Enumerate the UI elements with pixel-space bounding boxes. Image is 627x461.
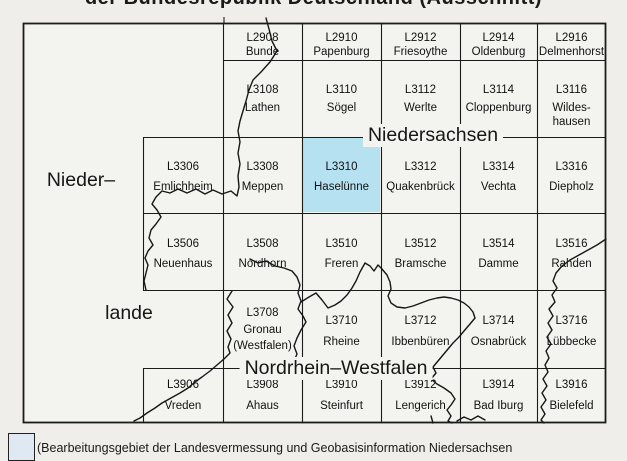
map-cell-L3316[interactable]: L3316Diepholz <box>538 138 605 212</box>
map-cell-L3506[interactable]: L3506Neuenhaus <box>144 214 222 289</box>
sheet-number: L3906 <box>142 377 224 393</box>
sheet-number: L3712 <box>380 313 461 329</box>
sheet-number: L3508 <box>222 236 303 252</box>
sheet-name: Sögel <box>301 100 382 116</box>
sheet-name: Quakenbrück <box>380 179 461 195</box>
region-label-niederlande-line2: lande <box>105 302 153 325</box>
sheet-name: Oldenburg <box>459 44 538 60</box>
sheet-name: Steinfurt <box>301 398 382 414</box>
map-cell-L3108[interactable]: L3108Lathen <box>224 61 301 136</box>
sheet-name: hausen <box>536 114 607 130</box>
sheet-name: Nordhorn <box>222 256 303 272</box>
map-cell-L3116[interactable]: L3116Wildes-hausen <box>538 61 605 136</box>
map-cell-L2910[interactable]: L2910Papenburg <box>303 24 380 59</box>
map-cell-L3510[interactable]: L3510Freren <box>303 214 380 289</box>
sheet-number: L3714 <box>459 313 538 329</box>
sheet-name: Papenburg <box>301 44 382 60</box>
map-cell-L3508[interactable]: L3508Nordhorn <box>224 214 301 289</box>
sheet-name: Friesoythe <box>380 44 461 60</box>
sheet-number: L3914 <box>459 377 538 393</box>
sheet-number: L3312 <box>380 159 461 175</box>
map-cell-L3314[interactable]: L3314Vechta <box>461 138 536 212</box>
sheet-name: Damme <box>459 256 538 272</box>
sheet-name: Cloppenburg <box>459 100 538 116</box>
map-cell-L3710[interactable]: L3710Rheine <box>303 291 380 367</box>
sheet-number: L3314 <box>459 159 538 175</box>
sheet-number: L3308 <box>222 159 303 175</box>
sheet-name: Neuenhaus <box>142 256 224 272</box>
sheet-name: Bad Iburg <box>459 398 538 414</box>
sheet-name: Lathen <box>222 100 303 116</box>
sheet-name: Ibbenbüren <box>380 334 461 350</box>
sheet-name: Osnabrück <box>459 334 538 350</box>
sheet-number: L3710 <box>301 313 382 329</box>
sheet-name: Freren <box>301 256 382 272</box>
sheet-number: L3512 <box>380 236 461 252</box>
sheet-number: L3316 <box>536 159 607 175</box>
sheet-number: L3310 <box>301 159 382 175</box>
sheet-number: L3716 <box>536 313 607 329</box>
sheet-name: Emlichheim <box>142 179 224 195</box>
sheet-name: Haselünne <box>301 179 382 195</box>
sheet-name: Lübbecke <box>536 334 607 350</box>
map-cell-L2916[interactable]: L2916Delmenhorst <box>538 24 605 59</box>
map-cell-L3714[interactable]: L3714Osnabrück <box>461 291 536 367</box>
sheet-number: L3114 <box>459 82 538 98</box>
map-cell-L3716[interactable]: L3716Lübbecke <box>538 291 605 367</box>
map-cell-L3514[interactable]: L3514Damme <box>461 214 536 289</box>
sheet-name: Meppen <box>222 179 303 195</box>
sheet-name: Werlte <box>380 100 461 116</box>
sheet-number: L3708 <box>222 305 303 321</box>
sheet-number: L3110 <box>301 82 382 98</box>
legend-highlight-swatch <box>8 433 35 461</box>
map-cell-L3312[interactable]: L3312Quakenbrück <box>382 138 459 212</box>
map-cell-L2912[interactable]: L2912Friesoythe <box>382 24 459 59</box>
map-cell-L3708[interactable]: L3708Gronau(Westfalen) <box>224 291 301 367</box>
map-cell-L3516[interactable]: L3516Rahden <box>538 214 605 289</box>
sheet-number: L3516 <box>536 236 607 252</box>
sheet-name: Vreden <box>142 398 224 414</box>
sheet-name: Diepholz <box>536 179 607 195</box>
sheet-number: L3306 <box>142 159 224 175</box>
sheet-number: L3514 <box>459 236 538 252</box>
sheet-name: Vechta <box>459 179 538 195</box>
sheet-name: (Westfalen) <box>222 338 303 354</box>
map-cell-L3712[interactable]: L3712Ibbenbüren <box>382 291 459 367</box>
sheet-name: Ahaus <box>222 398 303 414</box>
map-cell-L3916[interactable]: L3916Bielefeld <box>538 369 605 422</box>
sheet-name: Bramsche <box>380 256 461 272</box>
sheet-name: Bunde <box>222 44 303 60</box>
map-cell-L3306[interactable]: L3306Emlichheim <box>144 138 222 212</box>
sheet-name: Lengerich <box>380 398 461 414</box>
region-label-niederlande-line1: Nieder– <box>47 169 115 192</box>
map-cell-L2914[interactable]: L2914Oldenburg <box>461 24 536 59</box>
sheet-number: L3916 <box>536 377 607 393</box>
sheet-number: L3506 <box>142 236 224 252</box>
map-index-page: { "title": { "text": "der Bundesrepublik… <box>0 0 627 451</box>
page-title: der Bundesrepublik Deutschland (Ausschni… <box>0 0 627 10</box>
sheet-number: L3510 <box>301 236 382 252</box>
map-cell-L2908[interactable]: L2908Bunde <box>224 24 301 59</box>
sheet-name: Bielefeld <box>536 398 607 414</box>
region-label-niedersachsen: Niedersachsen <box>363 124 503 147</box>
map-cell-L3310[interactable]: L3310Haselünne <box>303 138 380 212</box>
sheet-name: Delmenhorst <box>536 44 607 60</box>
sheet-name: Rheine <box>301 334 382 350</box>
map-cell-L3308[interactable]: L3308Meppen <box>224 138 301 212</box>
sheet-number: L3116 <box>536 82 607 98</box>
sheet-number: L3108 <box>222 82 303 98</box>
map-cell-L3914[interactable]: L3914Bad Iburg <box>461 369 536 422</box>
legend-caption: (Bearbeitungsgebiet der Landesvermessung… <box>37 441 512 455</box>
sheet-name: Gronau <box>222 322 303 338</box>
sheet-name: Rahden <box>536 256 607 272</box>
map-cell-L3906[interactable]: L3906Vreden <box>144 369 222 422</box>
sheet-number: L3112 <box>380 82 461 98</box>
region-label-nordrhein-westfalen: Nordrhein–Westfalen <box>240 357 433 380</box>
map-cell-L3512[interactable]: L3512Bramsche <box>382 214 459 289</box>
